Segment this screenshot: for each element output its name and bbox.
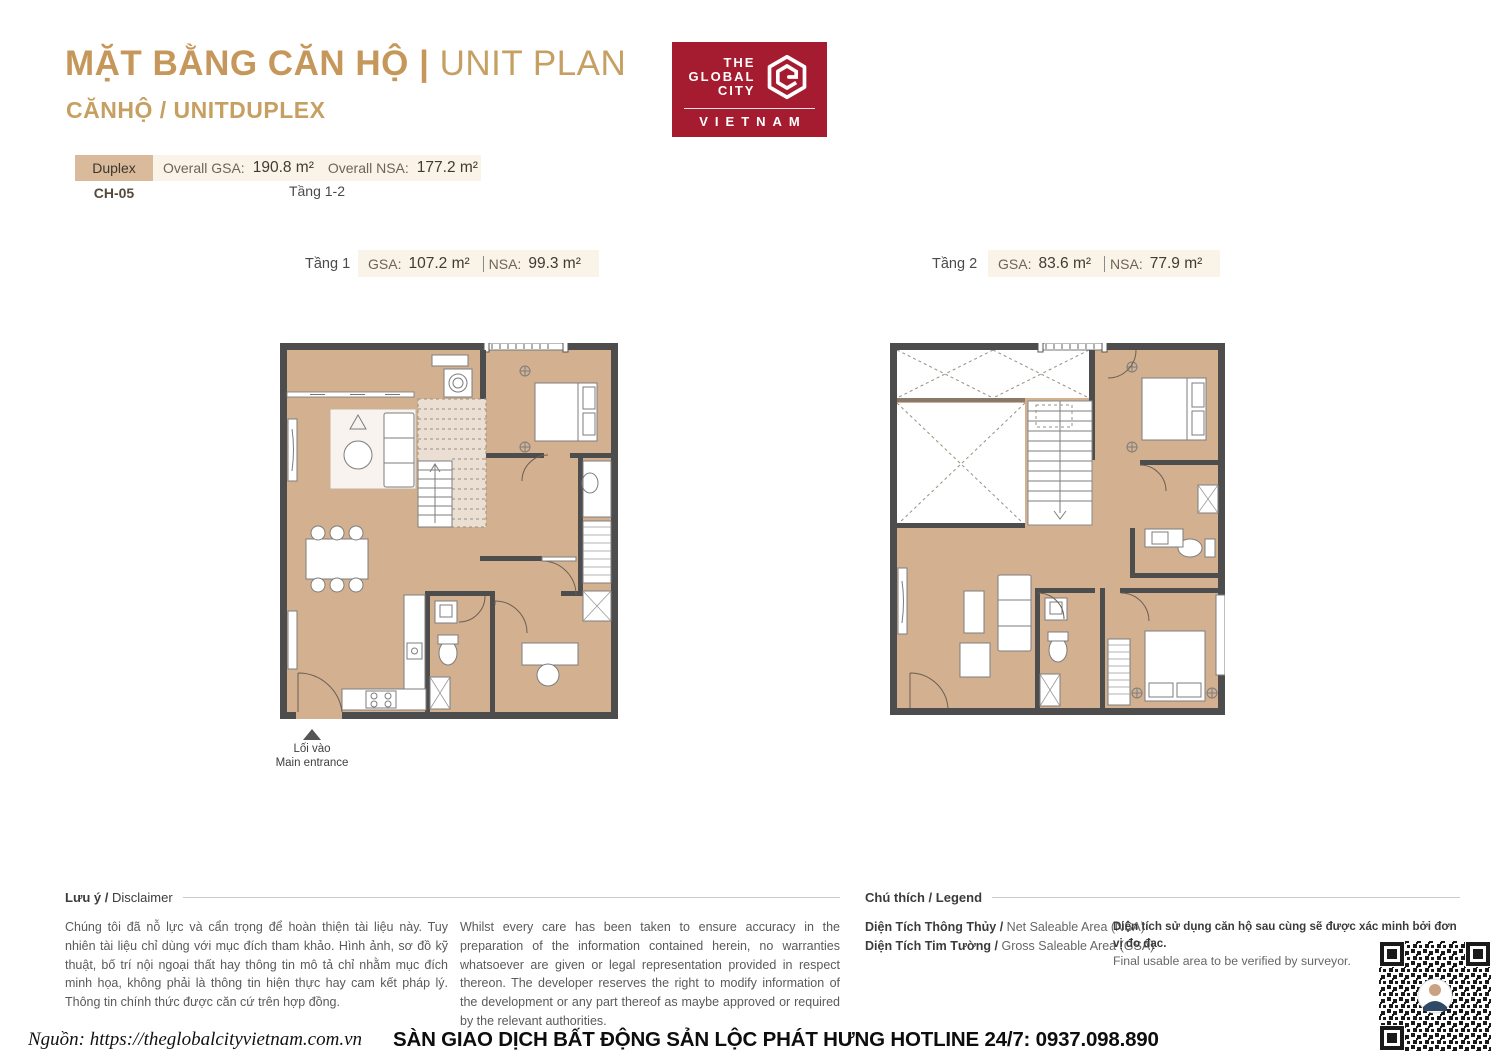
- disclaimer-text-vi: Chúng tôi đã nỗ lực và cẩn trọng để hoàn…: [65, 918, 448, 1012]
- floor1-label: Tầng 1: [305, 256, 350, 272]
- hexagon-g-icon: [764, 54, 810, 100]
- legend-items: Diện Tích Thông Thủy / Net Saleable Area…: [865, 918, 1154, 957]
- logo-wordmark: THE GLOBAL CITY: [689, 56, 756, 98]
- floor-plan-tang-2: [890, 343, 1225, 715]
- logo-country: VIETNAM: [672, 114, 827, 129]
- footer-source-link[interactable]: Nguồn: https://theglobalcityvietnam.com.…: [28, 1029, 362, 1051]
- overall-gsa-value: 190.8 m²: [253, 159, 314, 177]
- page-title: MẶT BẰNG CĂN HỘ | UNIT PLAN: [65, 44, 626, 84]
- floor2-label: Tầng 2: [932, 256, 977, 272]
- divider: [1104, 256, 1105, 272]
- entrance-vi: Lối vào: [253, 742, 371, 756]
- floor1-area-chip: GSA: 107.2 m² NSA: 99.3 m²: [358, 250, 599, 277]
- floor1-gsa-value: 107.2 m²: [408, 255, 469, 273]
- floor2-nsa-label: NSA:: [1110, 256, 1143, 272]
- floor-plan-tang-1: [280, 343, 618, 719]
- page-title-vi: MẶT BẰNG CĂN HỘ |: [65, 44, 429, 83]
- shelf: [432, 355, 468, 366]
- floor1-nsa-label: NSA:: [489, 256, 522, 272]
- floor2-nsa-value: 77.9 m²: [1150, 255, 1203, 273]
- unit-type-tab[interactable]: Duplex: [75, 155, 153, 181]
- legend-item-gsa: Diện Tích Tim Tường / Gross Saleable Are…: [865, 937, 1154, 956]
- right-column-fixtures: [582, 461, 611, 621]
- legend-heading: Chú thích / Legend: [865, 890, 1460, 905]
- stairs: [418, 399, 486, 527]
- disclaimer-heading: Lưu ý / Disclaimer: [65, 890, 840, 905]
- divider: [183, 897, 840, 898]
- disclaimer-text-en: Whilst every care has been taken to ensu…: [460, 918, 840, 1031]
- overall-gsa-label: Overall GSA:: [163, 160, 245, 176]
- page-title-en: UNIT PLAN: [429, 44, 626, 83]
- floor2-area-chip: GSA: 83.6 m² NSA: 77.9 m²: [988, 250, 1220, 277]
- wardrobe: [1108, 639, 1130, 705]
- floor1-nsa-value: 99.3 m²: [528, 255, 581, 273]
- qr-center-avatar: [1418, 979, 1452, 1013]
- floor2-gsa-value: 83.6 m²: [1038, 255, 1091, 273]
- divider: [483, 256, 484, 272]
- floors-range: Tầng 1-2: [153, 183, 481, 199]
- global-city-logo: THE GLOBAL CITY VIETNAM: [672, 42, 827, 137]
- stairs: [1028, 401, 1092, 525]
- footer-agency-hotline: SÀN GIAO DỊCH BẤT ĐỘNG SẢN LỘC PHÁT HƯNG…: [393, 1028, 1159, 1052]
- divider: [992, 897, 1460, 898]
- main-entrance-label: Lối vào Main entrance: [253, 729, 371, 770]
- window-band: [287, 392, 414, 397]
- entrance-arrow-icon: [303, 729, 321, 740]
- unit-plan-page: MẶT BẰNG CĂN HỘ | UNIT PLAN CĂNHỘ / UNIT…: [0, 0, 1500, 1060]
- overall-nsa-label: Overall NSA:: [328, 160, 409, 176]
- overall-area-bar: Overall GSA: 190.8 m² Overall NSA: 177.2…: [153, 155, 481, 181]
- page-subtitle: CĂNHỘ / UNITDUPLEX: [66, 97, 325, 124]
- overall-nsa-value: 177.2 m²: [417, 159, 478, 177]
- contact-qr-code[interactable]: [1375, 937, 1495, 1055]
- unit-code: CH-05: [75, 185, 153, 201]
- washing-machine: [444, 369, 472, 397]
- legend-item-nsa: Diện Tích Thông Thủy / Net Saleable Area…: [865, 918, 1154, 937]
- entrance-en: Main entrance: [253, 756, 371, 770]
- floor2-gsa-label: GSA:: [998, 256, 1031, 272]
- floor1-gsa-label: GSA:: [368, 256, 401, 272]
